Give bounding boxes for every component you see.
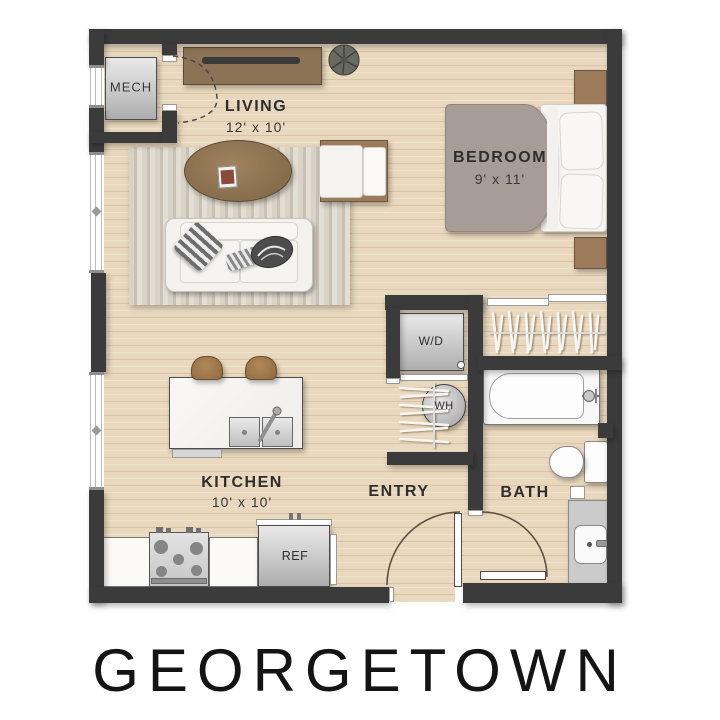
bedroom-dims: 9' x 11' <box>475 171 525 187</box>
entry-door-arc <box>387 512 460 585</box>
throw-pillow-round <box>248 232 297 272</box>
plan-overlay <box>0 0 720 720</box>
plant-icon <box>329 45 359 75</box>
tub-faucet <box>582 389 600 403</box>
washer-dryer-label: W/D <box>419 334 444 348</box>
mech-label: MECH <box>110 80 152 95</box>
water-heater-label: WH <box>434 400 453 412</box>
living-dims: 12' x 10' <box>226 119 286 135</box>
living-label: LIVING <box>225 98 287 116</box>
wh-closet-clothes <box>400 383 448 447</box>
refrigerator-label: REF <box>282 549 309 563</box>
floor-plan-page: MECH LIVING 12' x 10' BEDROOM 9' x 11' K… <box>0 0 720 720</box>
island-faucet <box>260 407 281 440</box>
entry-label: ENTRY <box>368 483 429 501</box>
bedroom-label: BEDROOM <box>453 149 547 167</box>
bath-label: BATH <box>500 484 549 502</box>
mech-door-arc <box>173 56 217 123</box>
plan-title: GEORGETOWN <box>0 636 720 705</box>
bath-door-arc <box>482 512 547 577</box>
kitchen-dims: 10' x 10' <box>212 494 272 510</box>
kitchen-label: KITCHEN <box>201 474 283 492</box>
wd-bifold-door <box>392 317 399 368</box>
bedroom-closet-clothes <box>490 312 604 352</box>
